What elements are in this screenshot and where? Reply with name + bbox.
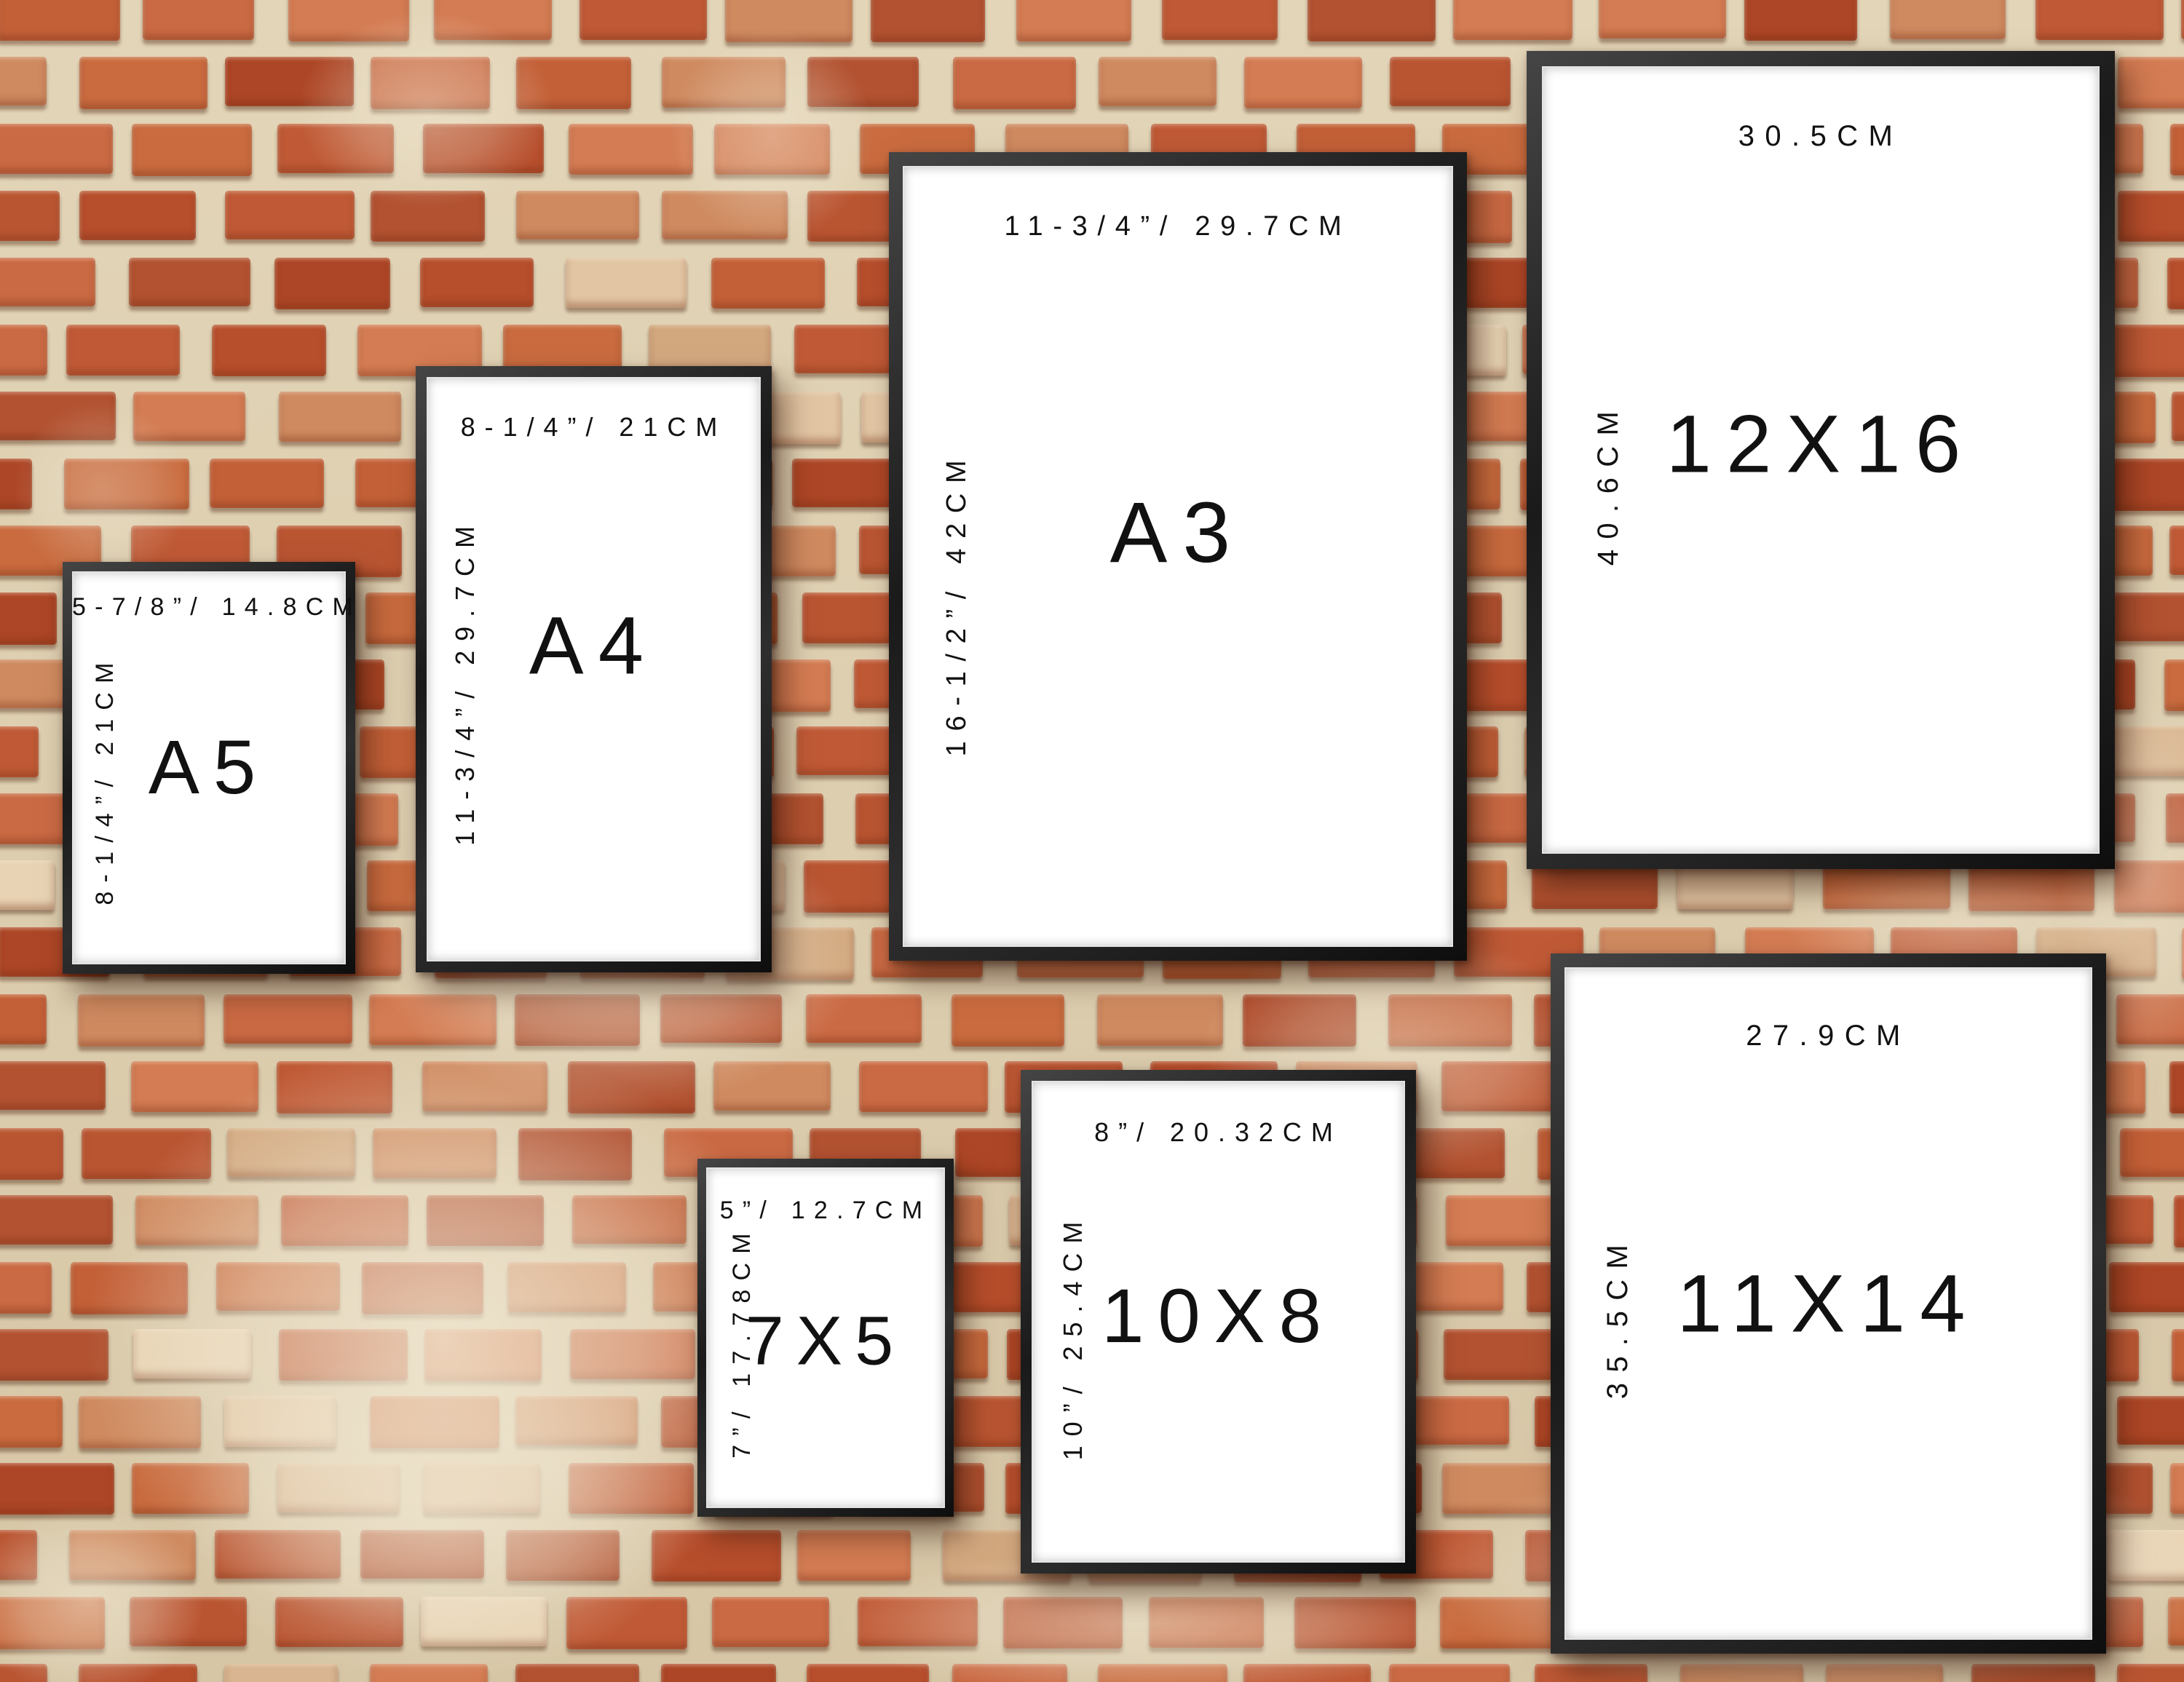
- frame-7x5-paper: 5”/ 12.7CM 7”/ 17.78CM 7X5: [706, 1167, 945, 1508]
- frame-a5-width-label: 5-7/8”/ 14.8CM: [72, 593, 346, 622]
- brick: [423, 124, 544, 173]
- brick: [0, 191, 60, 241]
- frame-12x16: 30.5CM 40.6CM 12X16: [1527, 51, 2115, 869]
- brick: [569, 124, 693, 175]
- brick: [0, 1061, 106, 1110]
- brick: [806, 994, 922, 1043]
- brick: [952, 1664, 1067, 1682]
- brick: [424, 1329, 542, 1381]
- brick: [131, 1061, 258, 1112]
- brick: [281, 1195, 408, 1246]
- brick: [370, 1664, 488, 1682]
- brick: [1389, 1664, 1510, 1682]
- frame-a4-size-label: A4: [529, 599, 658, 693]
- brick: [0, 325, 47, 376]
- brick: [133, 392, 245, 441]
- brick: [135, 1195, 258, 1245]
- brick: [64, 459, 189, 509]
- brick: [0, 860, 55, 910]
- brick: [807, 57, 919, 107]
- brick: [2170, 1463, 2184, 1514]
- brick: [223, 994, 352, 1044]
- brick: [569, 1463, 694, 1514]
- brick: [568, 1061, 695, 1114]
- brick: [371, 57, 490, 109]
- brick: [0, 0, 120, 41]
- brick: [0, 1195, 113, 1245]
- frame-a5: 5-7/8”/ 14.8CM 8-1/4”/ 21CM A5: [63, 562, 355, 974]
- brick: [129, 258, 250, 306]
- brick: [210, 459, 324, 508]
- brick: [143, 0, 254, 40]
- frame-11x14: 27.9CM 35.5CM 11X14: [1551, 953, 2106, 1654]
- brick: [714, 124, 830, 175]
- brick: [2172, 1329, 2184, 1381]
- brick: [1680, 1664, 1803, 1682]
- brick: [0, 1597, 105, 1649]
- brick: [0, 124, 113, 174]
- brick: [2169, 525, 2184, 575]
- frame-12x16-size-label: 12X16: [1666, 397, 1976, 491]
- brick: [216, 1262, 340, 1311]
- brick: [1162, 0, 1278, 40]
- brick: [421, 1597, 547, 1646]
- brick: [516, 191, 639, 239]
- frame-10x8-width-label: 8”/ 20.32CM: [1032, 1117, 1405, 1148]
- brick: [79, 1396, 201, 1448]
- brick: [1971, 1664, 2095, 1682]
- brick: [362, 1262, 483, 1314]
- brick: [225, 191, 355, 239]
- frame-12x16-width-label: 30.5CM: [1542, 120, 2100, 153]
- brick: [420, 258, 534, 307]
- brick: [371, 191, 485, 242]
- brick: [2169, 1061, 2184, 1114]
- brick: [2172, 392, 2184, 441]
- brick: [0, 1262, 52, 1314]
- frame-11x14-width-label: 27.9CM: [1564, 1020, 2092, 1052]
- frame-12x16-height-label: 40.6CM: [1592, 401, 1625, 566]
- brick: [0, 57, 47, 106]
- brick: [277, 124, 394, 173]
- brick: [2109, 1262, 2184, 1312]
- brick: [858, 1597, 978, 1646]
- brick: [0, 726, 39, 777]
- brick: [2108, 1530, 2184, 1581]
- brick: [422, 1061, 547, 1111]
- brick: [807, 1664, 929, 1682]
- brick: [2166, 793, 2184, 843]
- brick: [579, 0, 707, 40]
- brick: [2113, 592, 2184, 641]
- brick: [2174, 1195, 2184, 1247]
- brick: [1243, 1664, 1371, 1682]
- brick: [515, 994, 640, 1046]
- brick: [66, 325, 180, 376]
- brick: [1149, 1597, 1264, 1648]
- brick: [515, 1664, 639, 1682]
- frame-11x14-height-label: 35.5CM: [1602, 1234, 1634, 1399]
- brick: [2118, 57, 2184, 108]
- brick: [279, 1329, 408, 1381]
- brick: [0, 1664, 47, 1682]
- brick: [2164, 659, 2184, 711]
- brick: [725, 0, 852, 42]
- frame-10x8-height-label: 10”/ 25.4CM: [1058, 1213, 1088, 1461]
- brick: [0, 994, 47, 1044]
- brick: [2035, 0, 2164, 40]
- brick: [224, 1396, 336, 1447]
- frame-12x16-paper: 30.5CM 40.6CM 12X16: [1542, 66, 2100, 854]
- brick: [1294, 1597, 1416, 1649]
- brick: [711, 258, 825, 309]
- brick: [275, 1597, 403, 1647]
- brick: [712, 1597, 829, 1647]
- brick: [78, 994, 205, 1047]
- brick: [0, 1396, 63, 1448]
- brick: [516, 57, 631, 109]
- frame-a5-size-label: A5: [149, 724, 269, 812]
- brick: [132, 1463, 249, 1514]
- brick: [1826, 1664, 1943, 1682]
- brick: [1097, 994, 1223, 1046]
- brick: [661, 1664, 776, 1682]
- brick: [1244, 57, 1362, 108]
- frame-a3-paper: 11-3/4”/ 29.7CM 16-1/2”/ 42CM A3: [903, 166, 1453, 947]
- frame-11x14-size-label: 11X14: [1677, 1257, 1979, 1351]
- frame-a4: 8-1/4”/ 21CM 11-3/4”/ 29.7CM A4: [416, 366, 772, 972]
- brick: [797, 1530, 911, 1581]
- brick: [0, 1329, 108, 1381]
- brick: [2168, 1597, 2184, 1646]
- brick: [1444, 1329, 1563, 1380]
- brick: [871, 0, 985, 42]
- brick: [277, 1061, 392, 1114]
- brick: [1390, 57, 1511, 106]
- frame-7x5: 5”/ 12.7CM 7”/ 17.78CM 7X5: [697, 1159, 954, 1517]
- brick: [953, 57, 1076, 109]
- brick: [277, 1463, 400, 1512]
- brick: [713, 1061, 831, 1111]
- brick: [507, 1262, 626, 1312]
- brick: [2167, 258, 2184, 309]
- brick: [2105, 325, 2184, 377]
- brick: [225, 57, 354, 106]
- brick: [2181, 0, 2184, 39]
- brick: [279, 392, 401, 442]
- brick: [1744, 0, 1857, 41]
- brick: [518, 1128, 632, 1181]
- brick: [1243, 994, 1356, 1047]
- brick: [423, 1463, 540, 1513]
- brick: [1099, 57, 1216, 106]
- frame-a3-height-label: 16-1/2”/ 42CM: [941, 451, 973, 757]
- brick: [224, 1664, 338, 1682]
- frame-10x8: 8”/ 20.32CM 10”/ 25.4CM 10X8: [1021, 1070, 1416, 1574]
- brick: [0, 1530, 37, 1580]
- brick: [2120, 1128, 2184, 1177]
- brick: [227, 1128, 355, 1177]
- brick: [2118, 191, 2184, 242]
- frame-11x14-paper: 27.9CM 35.5CM 11X14: [1564, 967, 2092, 1640]
- brick: [79, 1664, 197, 1682]
- brick: [1535, 1664, 1647, 1682]
- brick: [1098, 1664, 1227, 1682]
- brick: [274, 258, 390, 309]
- brick: [1003, 1597, 1123, 1649]
- brick: [1016, 0, 1131, 41]
- brick: [427, 1195, 544, 1246]
- brick: [951, 994, 1064, 1047]
- brick: [572, 1195, 687, 1244]
- brick: [288, 0, 409, 41]
- brick: [2117, 1664, 2184, 1682]
- brick: [1440, 1597, 1561, 1649]
- frame-10x8-size-label: 10X8: [1101, 1273, 1335, 1360]
- brick: [2170, 124, 2184, 175]
- brick: [0, 258, 95, 306]
- brick: [133, 1329, 251, 1378]
- brick: [1890, 0, 2006, 39]
- brick: [79, 57, 207, 109]
- brick: [0, 459, 32, 509]
- frame-a4-paper: 8-1/4”/ 21CM 11-3/4”/ 29.7CM A4: [427, 377, 761, 961]
- brick: [660, 994, 782, 1043]
- brick: [570, 1329, 695, 1379]
- brick: [566, 258, 687, 308]
- frame-a4-height-label: 11-3/4”/ 29.7CM: [450, 517, 480, 846]
- brick: [79, 191, 196, 240]
- brick: [2107, 726, 2184, 776]
- brick: [212, 325, 326, 376]
- brick: [2117, 1396, 2184, 1445]
- frame-10x8-paper: 8”/ 20.32CM 10”/ 25.4CM 10X8: [1032, 1081, 1405, 1563]
- brick: [71, 1262, 188, 1314]
- brick: [859, 1061, 988, 1112]
- brick: [0, 592, 57, 645]
- brick: [1453, 0, 1572, 40]
- frame-a3-width-label: 11-3/4”/ 29.7CM: [903, 211, 1453, 242]
- brick: [0, 1128, 63, 1180]
- brick: [370, 1396, 499, 1448]
- brick: [132, 124, 252, 176]
- frame-7x5-size-label: 7X5: [745, 1301, 906, 1381]
- frame-a4-width-label: 8-1/4”/ 21CM: [427, 412, 761, 443]
- brick: [0, 392, 116, 440]
- frame-a5-height-label: 8-1/4”/ 21CM: [91, 654, 119, 905]
- frame-a3-size-label: A3: [1110, 483, 1246, 582]
- brick: [1388, 994, 1512, 1047]
- brick: [2114, 860, 2184, 913]
- brick: [360, 1530, 484, 1579]
- brick: [1441, 1061, 1564, 1111]
- brick: [130, 1597, 247, 1646]
- brick: [515, 1396, 638, 1445]
- brick: [1442, 1463, 1568, 1514]
- brick: [69, 1530, 196, 1580]
- brick: [373, 1128, 496, 1178]
- brick: [82, 1128, 211, 1179]
- brick: [215, 1530, 341, 1579]
- frame-7x5-width-label: 5”/ 12.7CM: [706, 1197, 945, 1225]
- brick: [662, 57, 786, 108]
- brick: [662, 191, 788, 239]
- brick: [434, 0, 552, 40]
- brick: [0, 1463, 114, 1515]
- brick: [1307, 0, 1436, 41]
- brick: [652, 1530, 781, 1582]
- brick: [2116, 994, 2184, 1044]
- brick: [566, 1597, 687, 1649]
- brick: [506, 1530, 620, 1581]
- frame-a3: 11-3/4”/ 29.7CM 16-1/2”/ 42CM A3: [889, 152, 1467, 961]
- frame-a5-paper: 5-7/8”/ 14.8CM 8-1/4”/ 21CM A5: [72, 571, 346, 964]
- brick: [1599, 0, 1726, 39]
- brick: [369, 994, 496, 1045]
- frame-size-chart-scene: 5-7/8”/ 14.8CM 8-1/4”/ 21CM A5 8-1/4”/ 2…: [0, 0, 2184, 1682]
